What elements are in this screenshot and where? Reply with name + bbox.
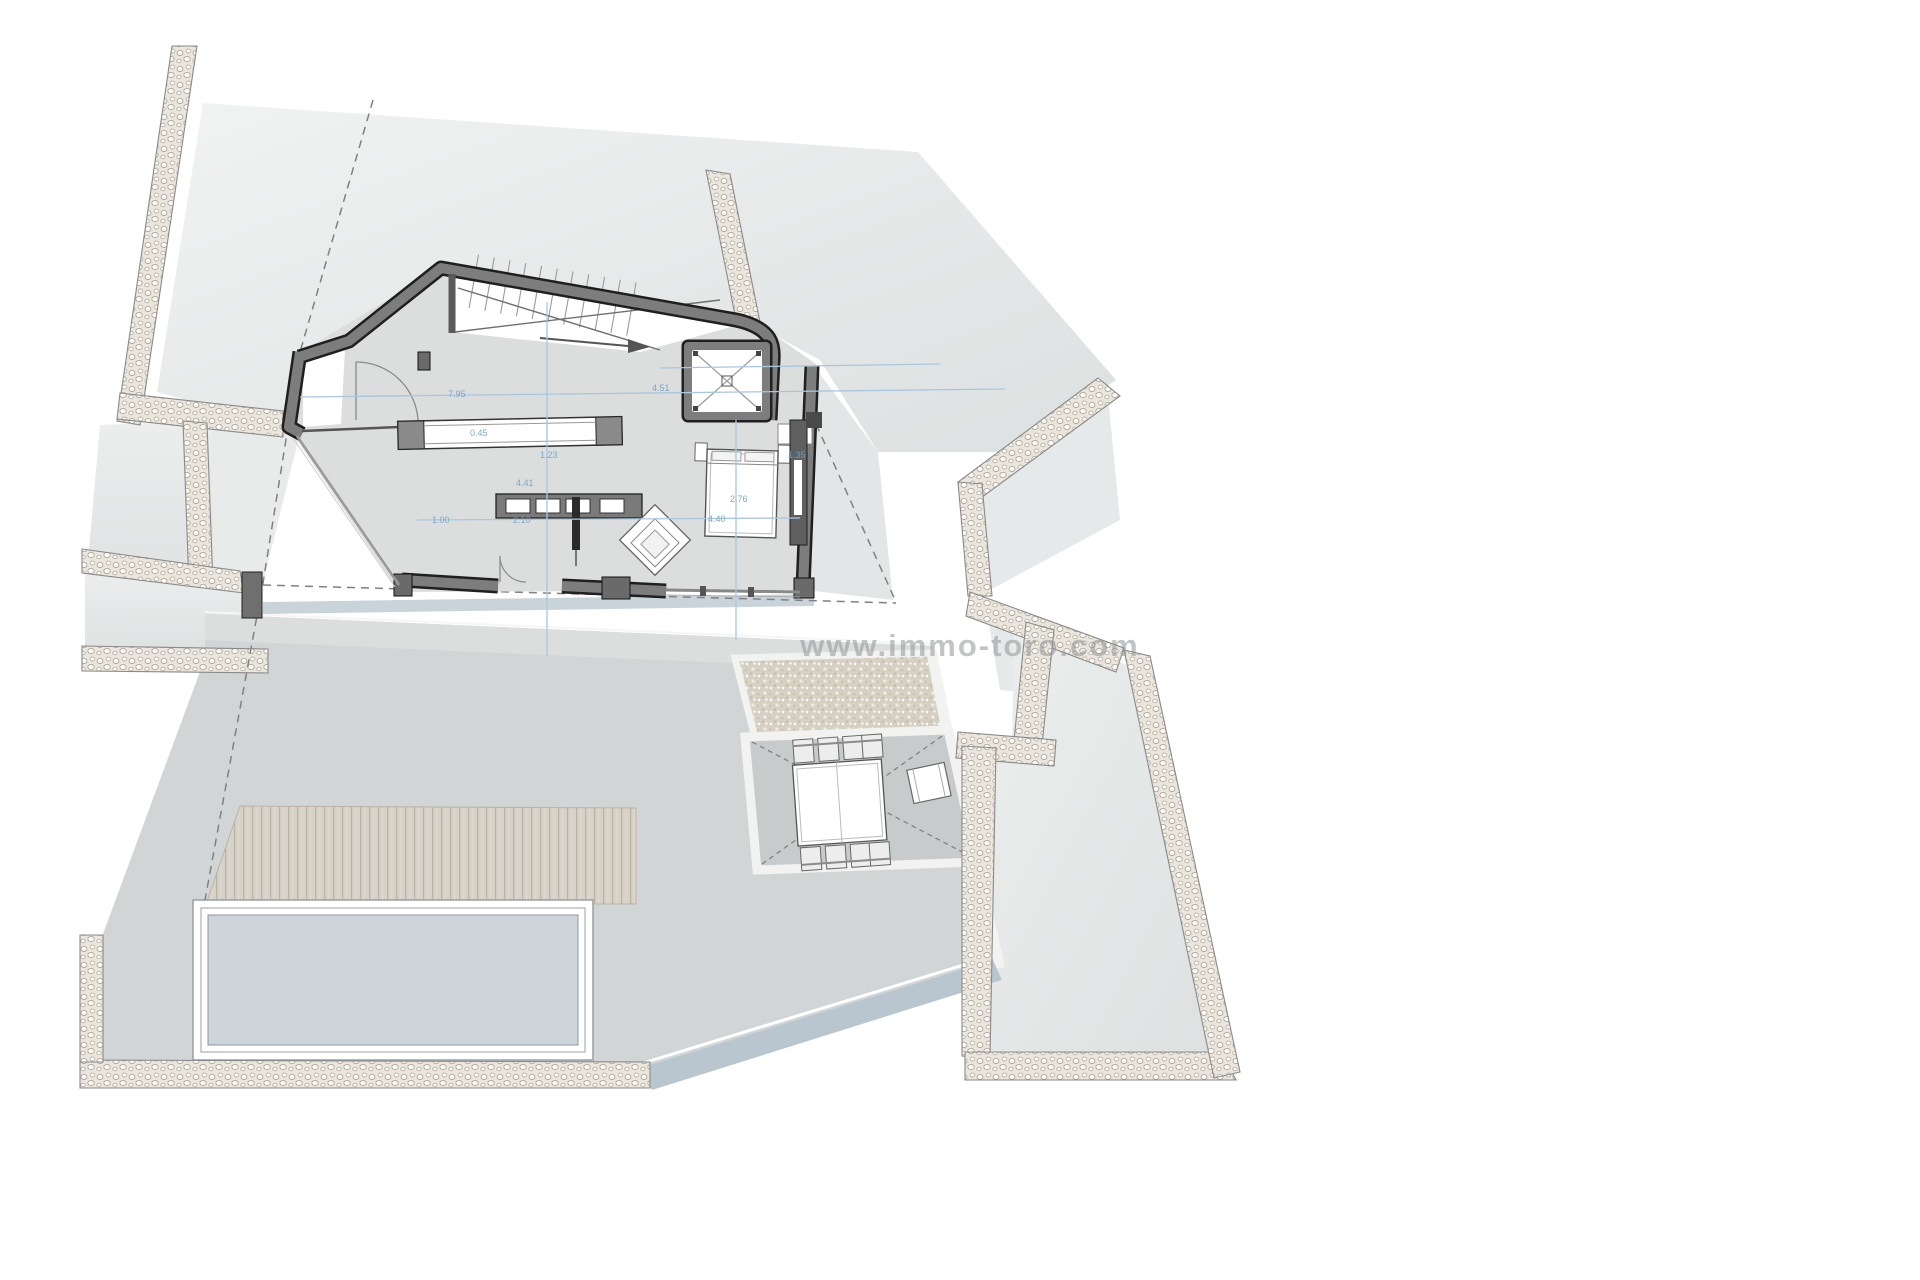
dining-chair xyxy=(843,735,865,759)
dimension-label: 0.45 xyxy=(470,428,488,438)
dining-chair xyxy=(793,739,815,763)
door-jamb-entry xyxy=(418,352,430,370)
dining-chair xyxy=(850,843,872,867)
window-end-block xyxy=(596,417,623,446)
dining-chair xyxy=(869,842,891,866)
elevator-corner-tick xyxy=(756,406,761,411)
window-end-block xyxy=(398,421,425,450)
dimension-label: 1.35 xyxy=(788,450,806,460)
dimension-label: 2.76 xyxy=(730,494,748,504)
window-frame xyxy=(398,417,623,450)
bed-pillow xyxy=(745,452,774,462)
site-plan-drawing: 7.95 4.51 1.23 0.45 4.41 1.00 2.10 4.40 … xyxy=(0,0,1920,1280)
counter-unit xyxy=(506,499,530,513)
dining-chair xyxy=(818,737,840,761)
swimming-pool-water xyxy=(208,915,578,1045)
elevator-corner-tick xyxy=(693,406,698,411)
dimension-label: 4.41 xyxy=(516,478,534,488)
neighbor-mass-southeast xyxy=(982,610,1228,1075)
boundary-wall-s1 xyxy=(965,1052,1236,1080)
dimension-label: 1.00 xyxy=(432,515,450,525)
counter-unit xyxy=(600,499,624,513)
wall-corner-block xyxy=(806,412,822,428)
bed-pillow xyxy=(712,451,741,461)
neighbor-court-west-b xyxy=(212,424,299,590)
counter-partition xyxy=(572,497,580,550)
watermark-text: www.immo-toro.com xyxy=(799,628,1139,663)
long-window xyxy=(398,417,623,450)
boundary-wall-e3 xyxy=(962,746,996,1058)
dining-chair xyxy=(825,845,847,869)
wall-post-se xyxy=(794,578,814,598)
dimension-label: 1.23 xyxy=(540,450,558,460)
dimension-label: 4.51 xyxy=(652,383,670,393)
wardrobe-slit xyxy=(794,460,802,515)
glass-post xyxy=(748,587,754,597)
patio-dining-area xyxy=(745,730,977,871)
site-plan-page: 7.95 4.51 1.23 0.45 4.41 1.00 2.10 4.40 … xyxy=(0,0,1920,1280)
south-glass-wall xyxy=(666,590,800,592)
boundary-wall-w4 xyxy=(82,646,268,673)
dining-chair xyxy=(862,734,884,758)
boundary-wall-pool-west xyxy=(80,935,103,1062)
counter-unit xyxy=(536,499,560,513)
dining-chair xyxy=(800,846,822,870)
dimension-label: 2.10 xyxy=(513,515,531,525)
nightstand xyxy=(695,443,707,461)
wall-post-s xyxy=(602,577,630,599)
terrace-west-post xyxy=(242,572,262,618)
glass-post xyxy=(700,586,706,596)
wall-post-sw xyxy=(394,574,412,596)
dimension-label: 7.95 xyxy=(448,389,466,399)
wood-deck xyxy=(206,806,636,904)
elevator-corner-tick xyxy=(693,351,698,356)
wall-south-a xyxy=(402,580,498,586)
dimension-label: 4.40 xyxy=(708,514,726,524)
boundary-wall-pool-south xyxy=(80,1060,650,1088)
sun-lounger xyxy=(907,762,951,803)
lounger-frame xyxy=(907,762,951,803)
elevator-corner-tick xyxy=(756,351,761,356)
